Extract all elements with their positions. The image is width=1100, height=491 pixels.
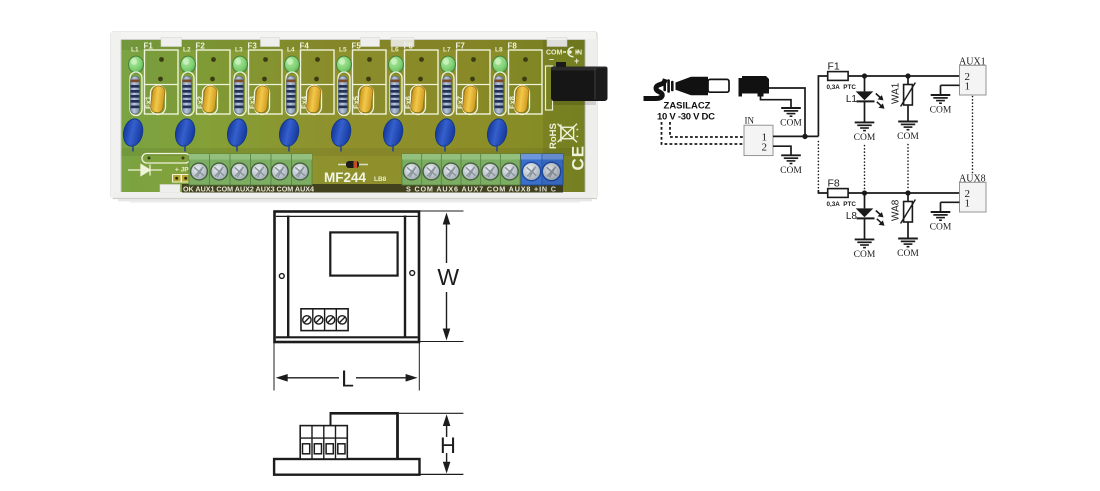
svg-text:L6: L6 xyxy=(391,47,399,54)
svg-text:CE: CE xyxy=(569,145,588,171)
svg-text:Fx6: Fx6 xyxy=(404,96,413,109)
svg-text:RoHS: RoHS xyxy=(548,123,559,149)
svg-text:F3: F3 xyxy=(248,42,258,51)
svg-text:10 V -30 V DC: 10 V -30 V DC xyxy=(657,112,715,123)
svg-text:COM: COM xyxy=(897,249,919,259)
svg-text:COM: COM xyxy=(780,166,802,176)
svg-text:2: 2 xyxy=(762,142,768,154)
svg-text:Fx7: Fx7 xyxy=(456,96,465,109)
svg-text:L4: L4 xyxy=(287,47,295,54)
svg-text:L5: L5 xyxy=(339,47,347,54)
svg-text:1: 1 xyxy=(965,198,971,210)
svg-text:F1: F1 xyxy=(144,42,154,51)
svg-text:+ JP: + JP xyxy=(175,167,189,174)
svg-text:ZASILACZ: ZASILACZ xyxy=(664,101,711,112)
svg-text:L1: L1 xyxy=(846,94,858,105)
svg-text:Fx3: Fx3 xyxy=(248,96,257,109)
svg-text:WA1: WA1 xyxy=(891,82,902,104)
svg-text:1: 1 xyxy=(965,81,971,93)
svg-text:Fx4: Fx4 xyxy=(300,95,309,109)
svg-text:F8: F8 xyxy=(828,177,840,189)
svg-text:–: – xyxy=(549,54,554,64)
svg-text:F4: F4 xyxy=(300,42,310,51)
svg-text:MF244: MF244 xyxy=(324,170,367,185)
svg-text:COM: COM xyxy=(897,132,919,142)
svg-text:COM: COM xyxy=(854,250,876,260)
svg-text:+: + xyxy=(574,56,579,66)
svg-text:COM: COM xyxy=(930,106,952,116)
svg-text:L: L xyxy=(341,366,354,392)
svg-text:F7: F7 xyxy=(456,42,466,51)
svg-text:0,3A PTC: 0,3A PTC xyxy=(827,201,857,208)
svg-text:Fx5: Fx5 xyxy=(352,96,361,109)
svg-text:COM: COM xyxy=(854,133,876,143)
svg-text:OK AUX1 COM AUX2 AUX3 COM AUX4: OK AUX1 COM AUX2 AUX3 COM AUX4 xyxy=(183,185,314,194)
svg-text:Fx1: Fx1 xyxy=(144,96,153,109)
svg-text:L3: L3 xyxy=(235,47,243,54)
svg-text:L1: L1 xyxy=(131,47,139,54)
svg-text:COM: COM xyxy=(780,119,802,129)
svg-text:0,3A PTC: 0,3A PTC xyxy=(827,84,857,91)
svg-text:L7: L7 xyxy=(443,47,451,54)
svg-text:H: H xyxy=(440,433,456,458)
svg-text:COM: COM xyxy=(930,223,952,233)
svg-text:Fx2: Fx2 xyxy=(196,96,205,109)
svg-text:F8: F8 xyxy=(508,42,518,51)
svg-text:S COM AUX6 AUX7 COM AUX8 +IN C: S COM AUX6 AUX7 COM AUX8 +IN C xyxy=(406,185,556,194)
svg-text:L2: L2 xyxy=(183,47,191,54)
svg-text:LB8: LB8 xyxy=(374,176,387,183)
svg-text:F2: F2 xyxy=(196,42,206,51)
svg-text:L8: L8 xyxy=(495,47,503,54)
svg-text:W: W xyxy=(437,264,459,290)
svg-text:F5: F5 xyxy=(352,42,362,51)
svg-text:L8: L8 xyxy=(846,211,858,222)
svg-text:Fx8: Fx8 xyxy=(508,96,517,109)
svg-text:IN: IN xyxy=(745,116,755,126)
svg-text:WA8: WA8 xyxy=(891,199,902,221)
svg-text:F1: F1 xyxy=(828,60,840,72)
